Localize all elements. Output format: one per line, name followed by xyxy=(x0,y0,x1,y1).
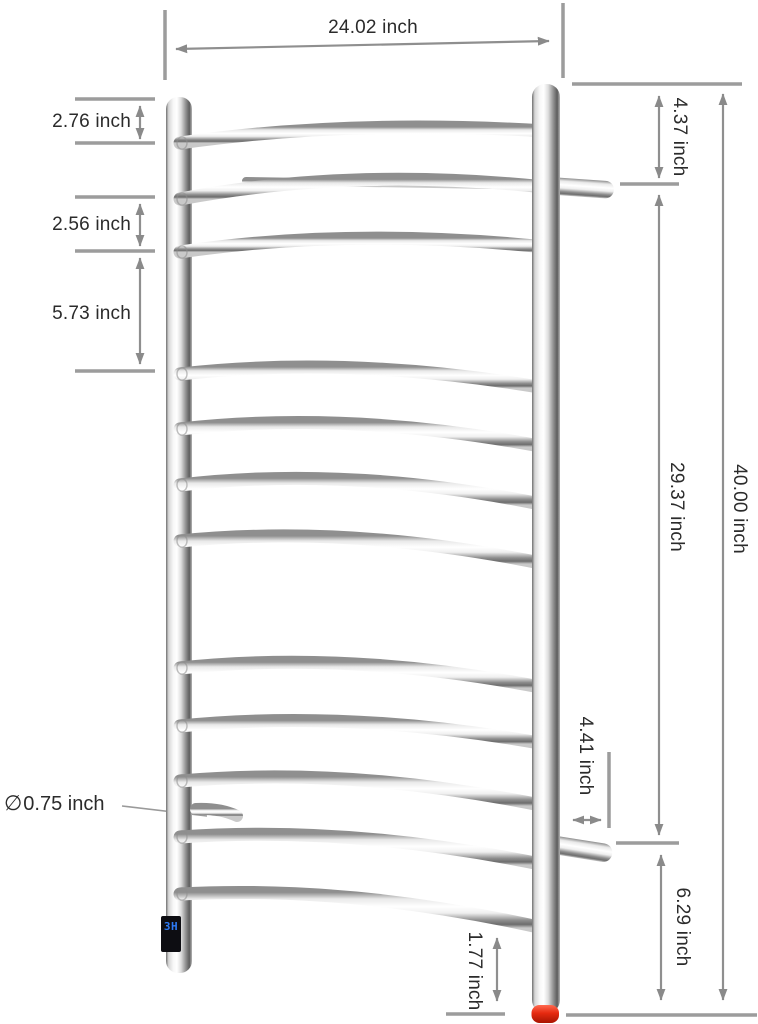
dim-label-40-00: 40.00 inch xyxy=(728,454,750,564)
right-post xyxy=(532,84,560,1013)
towel-rail xyxy=(180,478,545,505)
towel-rail xyxy=(180,834,545,865)
towel-rail xyxy=(180,662,545,688)
diameter-value: 0.75 inch xyxy=(23,793,104,815)
towel-rail xyxy=(180,720,545,744)
dim-label-6-29: 6.29 inch xyxy=(671,872,693,982)
towel-rail xyxy=(180,179,545,199)
dim-label-top-width: 24.02 inch xyxy=(318,17,428,39)
arrow-top-width xyxy=(176,41,549,49)
display-readout: 3H xyxy=(164,920,178,933)
dim-label-tube-diameter: ∅0.75 inch xyxy=(4,792,104,816)
dim-label-1-77: 1.77 inch xyxy=(463,916,485,1024)
towel-warmer-drawing: 3H xyxy=(0,0,758,1024)
red-foot-cap xyxy=(532,1005,560,1023)
dim-label-gap-5-73: 5.73 inch xyxy=(31,303,131,325)
dim-label-gap-2-56: 2.56 inch xyxy=(31,214,131,236)
dim-label-29-37: 29.37 inch xyxy=(665,452,687,562)
dim-label-gap-2-76: 2.76 inch xyxy=(31,111,131,133)
towel-rails xyxy=(180,127,545,928)
dim-label-4-41: 4.41 inch xyxy=(574,701,596,811)
towel-rail xyxy=(180,536,545,564)
led-display: 3H xyxy=(161,916,181,952)
dim-label-4-37: 4.37 inch xyxy=(668,82,690,192)
towel-rail xyxy=(180,127,545,143)
towel-rail xyxy=(180,238,545,252)
towel-rail xyxy=(180,367,545,388)
towel-rail xyxy=(180,777,545,806)
dimension-diagram: 3H 24.02 inch 2.76 inch 2.56 inch 5.73 i… xyxy=(0,0,758,1024)
diameter-symbol: ∅ xyxy=(4,792,23,815)
towel-rail xyxy=(180,423,545,447)
towel-rail xyxy=(180,892,543,928)
